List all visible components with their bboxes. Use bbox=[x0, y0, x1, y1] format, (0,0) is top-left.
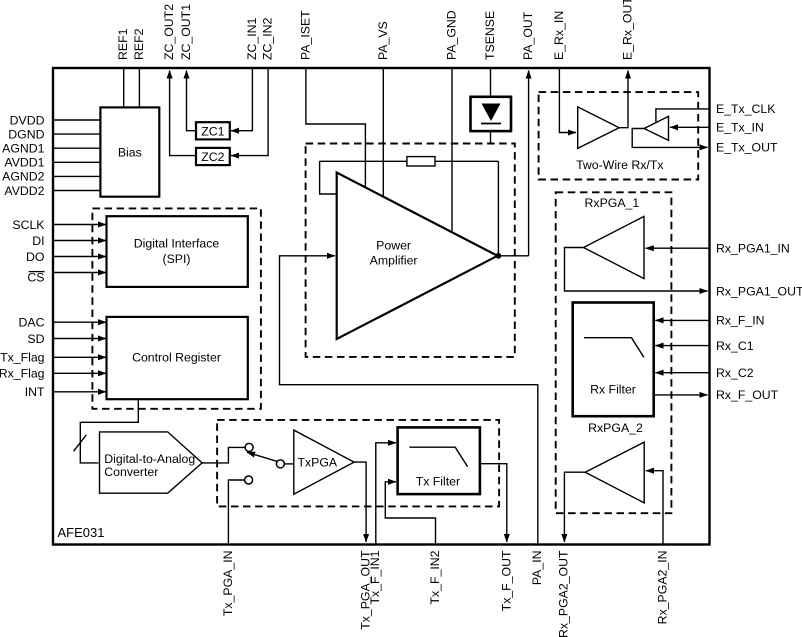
svg-text:RxPGA_2: RxPGA_2 bbox=[588, 421, 643, 435]
svg-text:PA_GND: PA_GND bbox=[445, 10, 459, 60]
svg-text:E_Tx_CLK: E_Tx_CLK bbox=[716, 102, 776, 116]
svg-text:Rx_PGA2_OUT: Rx_PGA2_OUT bbox=[557, 550, 571, 637]
svg-text:Tx_F_IN2: Tx_F_IN2 bbox=[428, 550, 442, 604]
svg-text:Two-Wire Rx/Tx: Two-Wire Rx/Tx bbox=[576, 158, 664, 172]
svg-text:Bias: Bias bbox=[118, 146, 142, 160]
svg-text:Tx_Flag: Tx_Flag bbox=[0, 351, 45, 365]
svg-text:E_Tx_OUT: E_Tx_OUT bbox=[716, 141, 778, 155]
svg-text:ZC1: ZC1 bbox=[201, 125, 224, 139]
svg-text:PA_OUT: PA_OUT bbox=[521, 11, 535, 60]
svg-text:E_Rx_IN: E_Rx_IN bbox=[552, 11, 566, 60]
svg-text:Tx_F_OUT: Tx_F_OUT bbox=[499, 550, 513, 611]
svg-text:Rx_PGA2_IN: Rx_PGA2_IN bbox=[655, 551, 669, 625]
svg-text:DGND: DGND bbox=[8, 127, 44, 141]
svg-text:Digital-to-Analog: Digital-to-Analog bbox=[104, 452, 195, 466]
svg-text:TSENSE: TSENSE bbox=[483, 11, 497, 60]
svg-text:ZC_IN2: ZC_IN2 bbox=[261, 17, 275, 60]
svg-text:INT: INT bbox=[25, 385, 45, 399]
svg-text:Power: Power bbox=[376, 238, 411, 252]
svg-text:PA_ISET: PA_ISET bbox=[298, 10, 312, 60]
svg-text:Control Register: Control Register bbox=[132, 351, 221, 365]
svg-text:Tx Filter: Tx Filter bbox=[416, 475, 460, 489]
svg-text:Tx_F_IN1: Tx_F_IN1 bbox=[368, 550, 382, 604]
svg-text:DVDD: DVDD bbox=[10, 113, 45, 127]
svg-text:Converter: Converter bbox=[104, 465, 158, 479]
svg-text:REF1: REF1 bbox=[116, 28, 130, 60]
svg-text:ZC_OUT2: ZC_OUT2 bbox=[162, 4, 176, 60]
svg-text:DO: DO bbox=[26, 250, 44, 264]
svg-text:Rx_F_OUT: Rx_F_OUT bbox=[716, 388, 779, 402]
svg-text:Digital Interface: Digital Interface bbox=[134, 237, 220, 251]
svg-text:Rx_Flag: Rx_Flag bbox=[0, 367, 45, 381]
svg-text:Tx_PGA_IN: Tx_PGA_IN bbox=[221, 551, 235, 617]
svg-text:PA_VS: PA_VS bbox=[376, 21, 390, 60]
svg-text:Rx_F_IN: Rx_F_IN bbox=[716, 314, 765, 328]
svg-text:Rx_PGA1_OUT: Rx_PGA1_OUT bbox=[716, 284, 802, 298]
svg-text:E_Rx_OUT: E_Rx_OUT bbox=[621, 0, 635, 60]
svg-text:ZC_OUT1: ZC_OUT1 bbox=[179, 4, 193, 60]
svg-text:Rx_C1: Rx_C1 bbox=[716, 339, 754, 353]
svg-text:(SPI): (SPI) bbox=[162, 252, 190, 266]
svg-text:REF2: REF2 bbox=[132, 28, 146, 60]
svg-text:AGND2: AGND2 bbox=[2, 170, 45, 184]
svg-text:RxPGA_1: RxPGA_1 bbox=[585, 196, 640, 210]
svg-text:CS: CS bbox=[27, 271, 44, 285]
svg-text:SD: SD bbox=[27, 332, 44, 346]
svg-text:AVDD1: AVDD1 bbox=[4, 156, 44, 170]
svg-text:TxPGA: TxPGA bbox=[298, 455, 338, 469]
svg-text:Amplifier: Amplifier bbox=[370, 253, 418, 267]
svg-text:Rx_PGA1_IN: Rx_PGA1_IN bbox=[716, 242, 790, 256]
svg-text:PA_IN: PA_IN bbox=[530, 551, 544, 586]
svg-text:DAC: DAC bbox=[19, 316, 45, 330]
svg-text:AGND1: AGND1 bbox=[2, 142, 45, 156]
svg-text:AVDD2: AVDD2 bbox=[4, 184, 44, 198]
svg-text:DI: DI bbox=[32, 234, 44, 248]
svg-text:E_Tx_IN: E_Tx_IN bbox=[716, 121, 764, 135]
svg-text:ZC_IN1: ZC_IN1 bbox=[245, 17, 259, 60]
svg-text:ZC2: ZC2 bbox=[201, 150, 224, 164]
svg-text:AFE031: AFE031 bbox=[58, 525, 105, 540]
svg-text:Rx Filter: Rx Filter bbox=[590, 382, 636, 396]
svg-text:Rx_C2: Rx_C2 bbox=[716, 366, 754, 380]
svg-text:SCLK: SCLK bbox=[12, 218, 45, 232]
